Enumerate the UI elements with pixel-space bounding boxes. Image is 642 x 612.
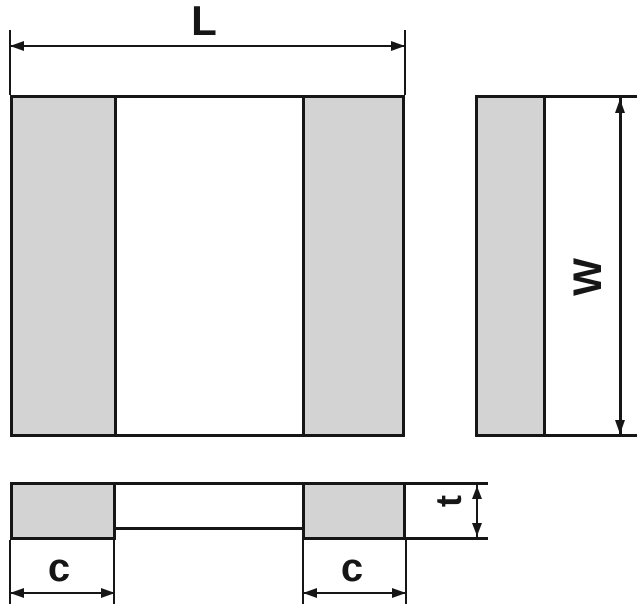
arrowhead-left-icon — [10, 588, 24, 598]
front-left-terminal-pad — [13, 98, 117, 434]
dim-terminal-left-line — [10, 592, 115, 594]
dim-thickness-label: t — [431, 483, 467, 519]
dim-length-label: L — [182, 0, 226, 42]
dim-length-extension-left — [9, 30, 11, 95]
arrowhead-left-icon — [303, 588, 317, 598]
side-terminal-pad — [478, 98, 546, 434]
bottom-body-bar — [116, 482, 302, 530]
bottom-left-terminal-pad — [10, 482, 116, 540]
dim-terminal-right-line — [303, 592, 406, 594]
arrowhead-right-icon — [392, 588, 406, 598]
front-view-body — [10, 95, 405, 437]
dim-width-label: W — [568, 257, 608, 297]
arrowhead-up-icon — [615, 99, 625, 113]
arrowhead-right-icon — [391, 41, 405, 51]
dim-terminal-right-label: c — [331, 548, 373, 588]
dim-width-extension-bottom — [620, 434, 637, 437]
dim-terminal-left-label: c — [38, 548, 80, 588]
bottom-right-terminal-pad — [302, 482, 406, 540]
arrowhead-down-icon — [615, 420, 625, 434]
front-right-terminal-pad — [302, 98, 402, 434]
dim-thickness-extension-bottom — [406, 537, 488, 540]
arrowhead-right-icon — [101, 588, 115, 598]
arrowhead-up-icon — [472, 486, 482, 499]
component-dimension-drawing: L W t c c — [0, 0, 642, 612]
arrowhead-left-icon — [10, 41, 24, 51]
dim-width-extension-top — [620, 95, 637, 98]
arrowhead-down-icon — [472, 523, 482, 536]
dim-length-line — [10, 45, 405, 47]
dim-length-extension-right — [404, 30, 406, 95]
